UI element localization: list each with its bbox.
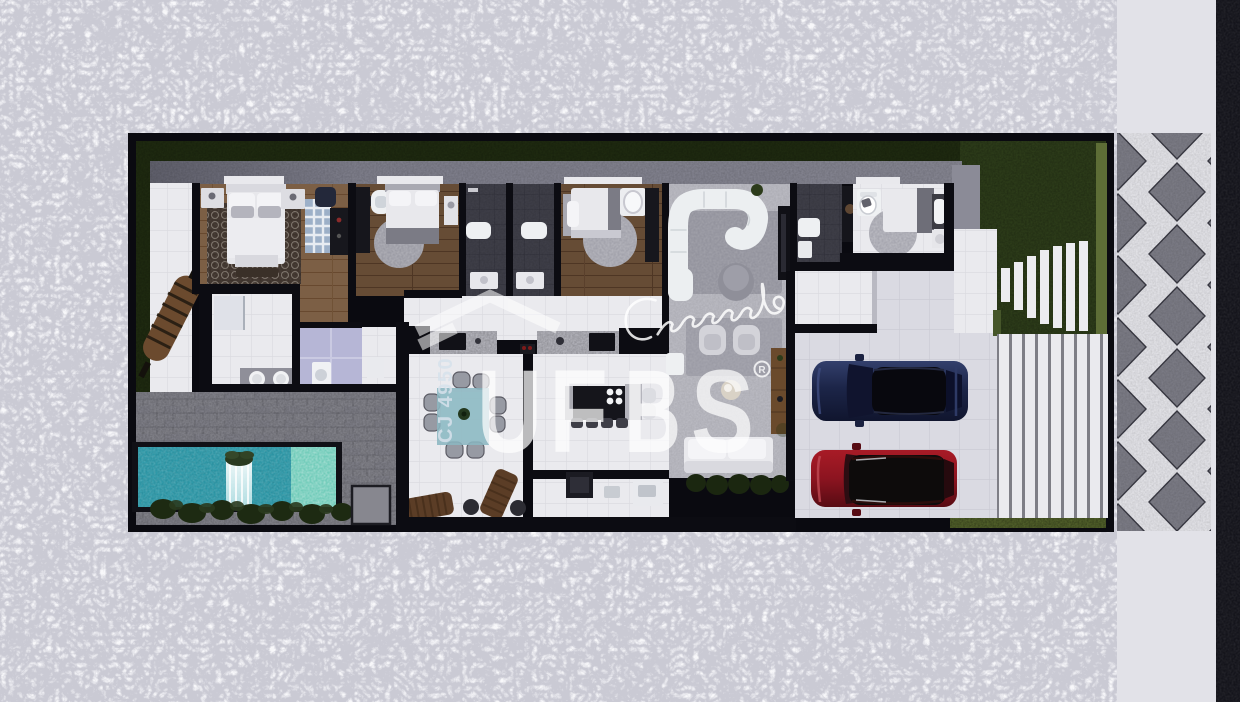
svg-text:F: F <box>549 346 608 478</box>
svg-text:S: S <box>691 346 754 478</box>
svg-text:U: U <box>477 346 542 478</box>
svg-text:R: R <box>758 365 766 376</box>
svg-text:B: B <box>624 346 681 478</box>
svg-text:CJ 4950: CJ 4950 <box>435 357 457 443</box>
